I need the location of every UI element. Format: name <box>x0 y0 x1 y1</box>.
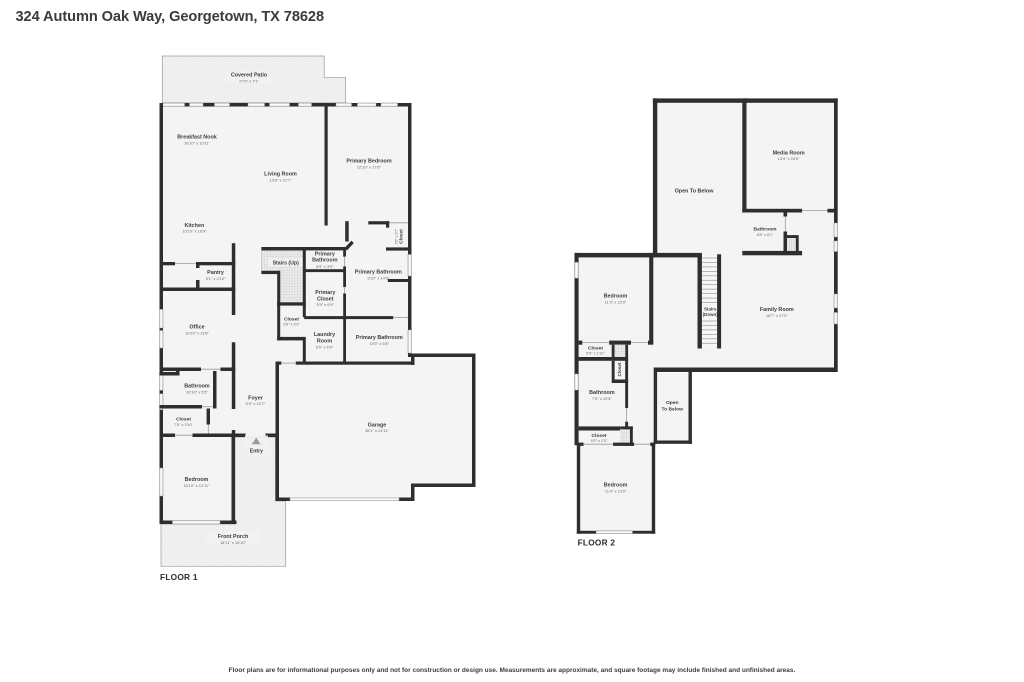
svg-text:13'8" x 21'7": 13'8" x 21'7" <box>270 177 293 182</box>
svg-text:Stairs (Up): Stairs (Up) <box>273 261 300 267</box>
svg-text:10'10" x 10'11": 10'10" x 10'11" <box>184 140 211 145</box>
svg-text:10'10" x 5'5": 10'10" x 5'5" <box>186 390 209 395</box>
svg-text:Closet: Closet <box>617 362 622 377</box>
svg-text:6'3" x 10'7": 6'3" x 10'7" <box>246 401 266 406</box>
svg-text:Stairs: Stairs <box>704 306 717 311</box>
svg-text:Primary: Primary <box>315 251 335 257</box>
svg-text:11'3" x 13'0": 11'3" x 13'0" <box>605 488 627 493</box>
svg-text:7'5" x 3'10": 7'5" x 3'10" <box>174 423 193 427</box>
svg-text:5'9" x 3'9": 5'9" x 3'9" <box>316 264 334 269</box>
svg-text:6'0" x 2'0": 6'0" x 2'0" <box>591 439 608 443</box>
svg-text:Primary: Primary <box>315 290 335 296</box>
svg-text:Laundry: Laundry <box>314 332 335 338</box>
svg-text:27'9" x 7'1": 27'9" x 7'1" <box>239 78 259 83</box>
svg-text:Closet: Closet <box>399 229 405 244</box>
svg-text:6'8" x 6'1": 6'8" x 6'1" <box>757 233 774 237</box>
svg-text:Closet: Closet <box>592 433 607 439</box>
svg-text:3'6" x 3'7": 3'6" x 3'7" <box>394 228 398 244</box>
svg-text:12'10" x 17'8": 12'10" x 17'8" <box>357 164 382 169</box>
svg-text:To Below: To Below <box>662 406 684 412</box>
svg-text:16'7" x 17'0": 16'7" x 17'0" <box>766 313 789 318</box>
svg-text:10'10" x 16'9": 10'10" x 16'9" <box>182 229 207 234</box>
svg-text:10'10" x 11'8": 10'10" x 11'8" <box>185 330 209 335</box>
svg-text:FLOOR 1: FLOOR 1 <box>160 572 198 582</box>
svg-text:3'6" x 5'2": 3'6" x 5'2" <box>283 323 300 327</box>
svg-text:9'10" x 14'9": 9'10" x 14'9" <box>367 276 390 281</box>
svg-text:5'1" x 2'10": 5'1" x 2'10" <box>206 276 226 281</box>
svg-text:Bathroom: Bathroom <box>753 227 777 233</box>
svg-text:10'10" x 12'11": 10'10" x 12'11" <box>183 483 210 488</box>
svg-text:11'3" x 13'3": 11'3" x 13'3" <box>605 299 627 304</box>
svg-text:36'1" x 21'11": 36'1" x 21'11" <box>365 428 389 433</box>
svg-text:5'9" x 6'9": 5'9" x 6'9" <box>317 302 335 307</box>
svg-text:Closet: Closet <box>588 346 603 352</box>
svg-text:13'4" x 16'6": 13'4" x 16'6" <box>778 156 801 161</box>
svg-text:(Down): (Down) <box>703 312 719 317</box>
svg-text:7'5" x 10'5": 7'5" x 10'5" <box>592 396 612 401</box>
svg-text:18'11" x 19'10": 18'11" x 19'10" <box>220 540 247 545</box>
svg-text:Closet: Closet <box>284 316 299 322</box>
svg-text:5'9" x 6'9": 5'9" x 6'9" <box>316 344 334 349</box>
svg-text:10'0" x 6'8": 10'0" x 6'8" <box>369 341 389 346</box>
svg-text:5'9" x 1'11": 5'9" x 1'11" <box>586 352 605 356</box>
svg-text:Entry: Entry <box>250 448 263 454</box>
svg-text:Closet: Closet <box>176 417 191 423</box>
svg-text:Bathroom: Bathroom <box>312 258 338 264</box>
svg-text:Open: Open <box>666 400 679 406</box>
svg-text:FLOOR 2: FLOOR 2 <box>578 537 616 547</box>
svg-text:Open To Below: Open To Below <box>675 189 715 195</box>
